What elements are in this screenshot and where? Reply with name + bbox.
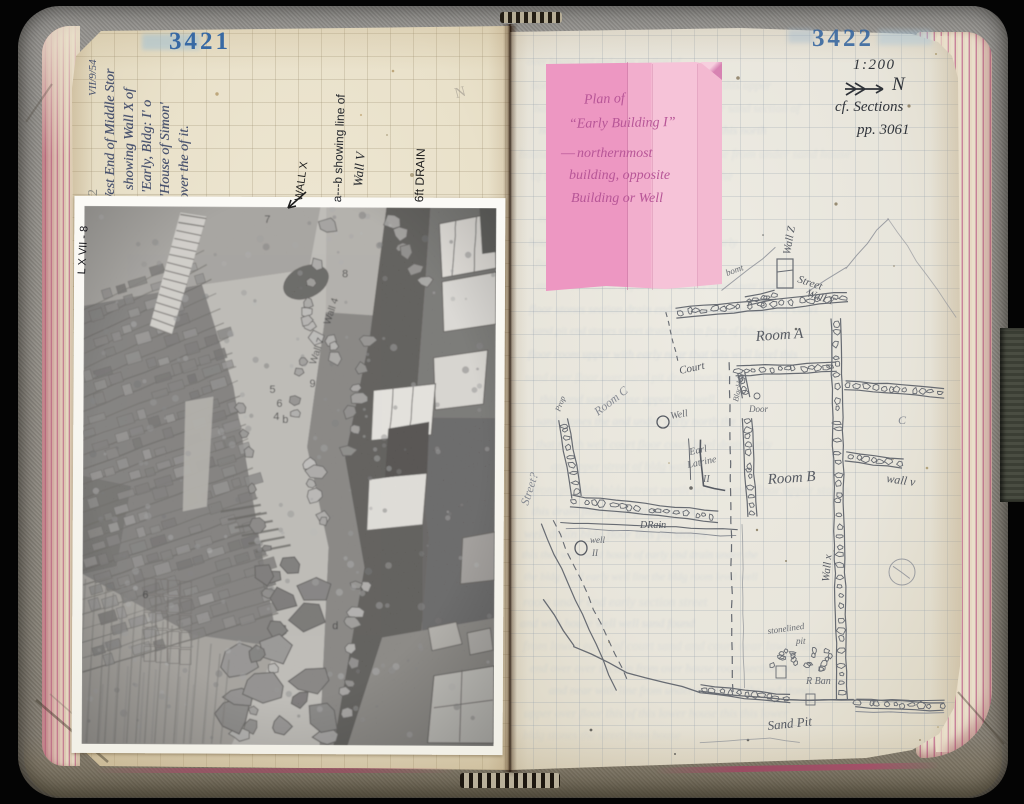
svg-text:DRain: DRain [639,520,666,531]
svg-text:R Ban: R Ban [805,676,831,687]
svg-text:II: II [591,548,599,558]
svg-text:Court: Court [678,360,707,377]
svg-text:bomt: bomt [724,262,745,278]
svg-text:stonelined: stonelined [767,621,806,636]
svg-text:Wall Z: Wall Z [781,224,798,255]
svg-text:Well: Well [670,408,689,422]
svg-text:Street?: Street? [518,471,542,507]
svg-text:Blackbld: Blackbld [731,372,746,403]
svg-text:C: C [898,413,907,427]
svg-text:Room B: Room B [766,469,816,488]
svg-text:Sand Pit: Sand Pit [767,713,813,733]
svg-text:Room A: Room A [754,326,804,345]
svg-text:well: well [590,535,605,545]
svg-text:wall v: wall v [886,471,917,489]
svg-text:II: II [702,474,710,485]
svg-text:pit: pit [795,636,806,646]
svg-text:Prop: Prop [553,395,567,414]
svg-text:Door: Door [748,404,768,414]
svg-text:Room C: Room C [590,383,631,419]
svg-text:Wall x: Wall x [820,554,834,582]
